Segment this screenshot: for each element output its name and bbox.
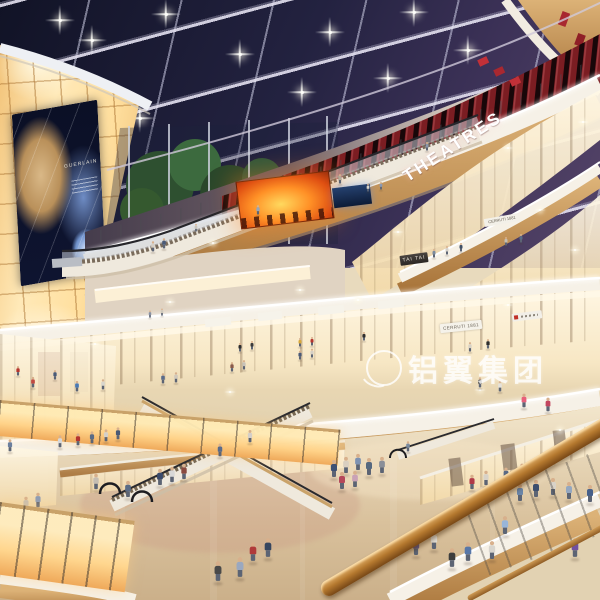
watermark: 铝翼集团 [366,346,548,390]
wall-top-trim [0,48,150,106]
watermark-logo-icon [366,350,402,386]
watermark-text: 铝翼集团 [408,346,548,390]
mall-atrium-rendering: GUERLAIN [0,0,600,600]
